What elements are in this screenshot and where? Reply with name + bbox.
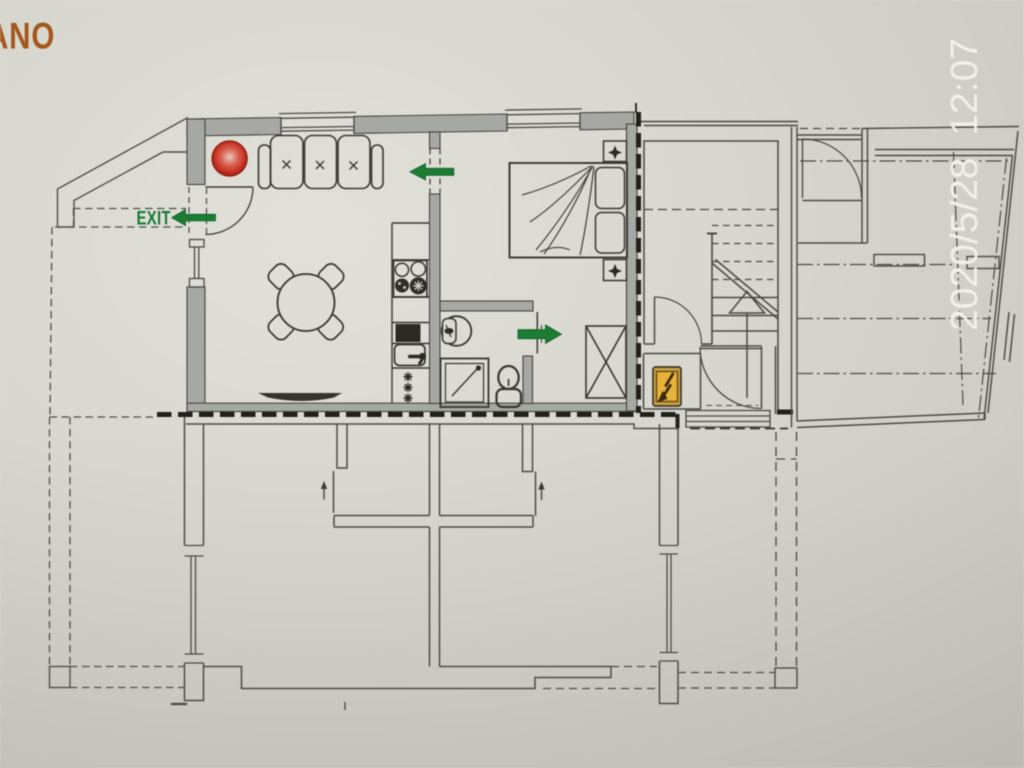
svg-text:2020/5/28 12:07: 2020/5/28 12:07 — [944, 38, 986, 331]
svg-text:ANO: ANO — [0, 16, 55, 57]
svg-text:EXIT: EXIT — [137, 208, 172, 229]
